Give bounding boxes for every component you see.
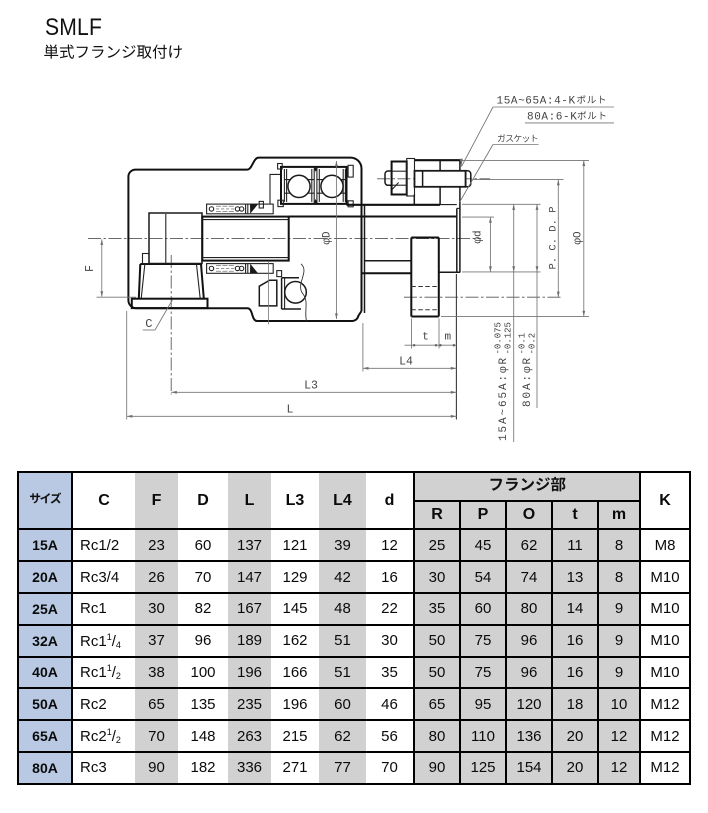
svg-text:F: F [84,265,97,272]
svg-text:φO: φO [573,231,585,245]
svg-text:80A:φR-0.1-0.2: 80A:φR-0.1-0.2 [518,333,538,407]
svg-text:15A~65A:4-K: 15A~65A:4-K [497,95,576,107]
svg-text:P. C. D. P: P. C. D. P [548,206,560,269]
svg-text:C: C [145,317,152,331]
svg-text:t: t [422,332,429,344]
svg-text:L3: L3 [304,380,318,393]
svg-text:L4: L4 [399,356,413,369]
svg-text:15A~65A:φR-0.075-0.125: 15A~65A:φR-0.075-0.125 [494,322,514,441]
svg-text:m: m [444,332,451,344]
svg-text:L: L [287,404,294,417]
svg-text:80A:6-K: 80A:6-K [527,111,577,123]
svg-text:φD: φD [322,231,334,245]
svg-text:φd: φd [473,230,485,243]
